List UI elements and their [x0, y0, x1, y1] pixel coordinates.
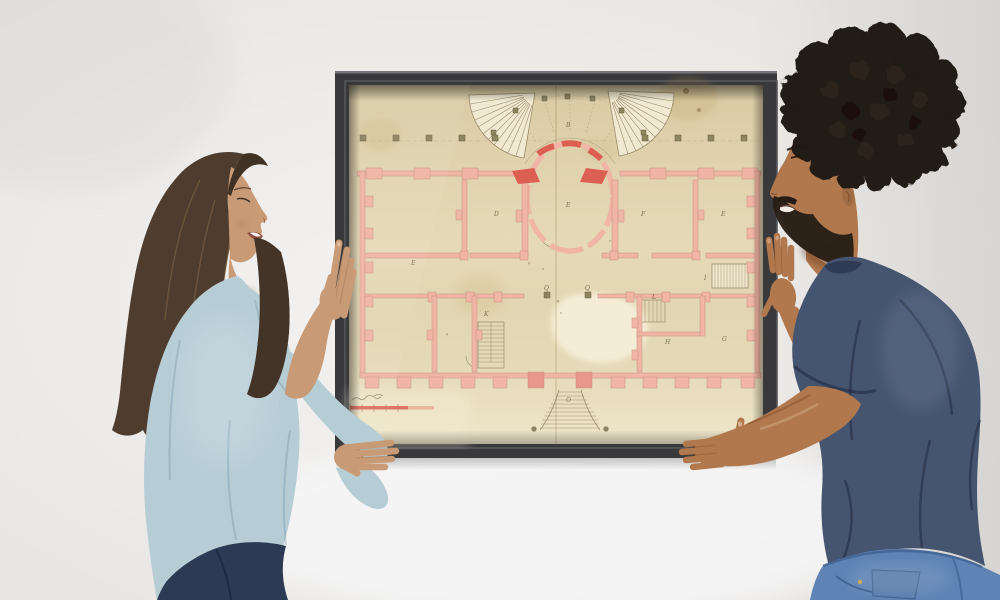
- wall-tab: [692, 251, 700, 260]
- interior-wall-west: [462, 180, 467, 256]
- pilaster: [707, 377, 721, 388]
- pilaster: [698, 168, 714, 179]
- pilaster: [493, 377, 507, 388]
- wall-tab: [476, 330, 482, 340]
- south-wall: [360, 373, 761, 378]
- wall-tab: [632, 318, 638, 328]
- wall-tab: [516, 210, 522, 222]
- entrance-pier-west: [528, 372, 544, 388]
- room-letter: L: [651, 294, 656, 301]
- curl-highlight: [850, 60, 870, 80]
- corridor-wall-n2: [470, 253, 522, 258]
- artwork-floor-plan: B D E F E E K L H G I O Q Q: [349, 76, 763, 444]
- oval-flank-wall-west: [522, 180, 528, 256]
- curl-highlight: [897, 132, 913, 148]
- pilaster: [461, 377, 475, 388]
- room-letter: E: [720, 211, 726, 218]
- pilaster: [650, 168, 666, 179]
- room-letter: D: [493, 211, 499, 218]
- room-letter: Q: [585, 285, 590, 292]
- corridor-wall-s7: [670, 294, 702, 298]
- curl-highlight: [821, 81, 839, 99]
- woman-cheek-blush: [236, 220, 248, 228]
- room-h-wall-s: [637, 332, 700, 336]
- pilaster: [643, 377, 657, 388]
- curl-highlight: [886, 66, 904, 84]
- corridor-wall-s5: [598, 294, 626, 298]
- woman-right-hand: [334, 443, 396, 473]
- oval-flank-wall-east: [612, 180, 618, 256]
- wall-tab: [626, 292, 634, 302]
- picture-frame: B D E F E E K L H G I O Q Q: [335, 71, 777, 470]
- wall-tab: [618, 210, 624, 222]
- room-letter: Q: [544, 285, 549, 292]
- room-letter: F: [640, 211, 646, 218]
- wall-tab: [460, 251, 468, 260]
- scale-bar-faded: [408, 406, 434, 410]
- stain-spot: [697, 108, 701, 112]
- room-letter: E: [565, 202, 571, 209]
- room-letter: G: [722, 336, 727, 343]
- curl-shadow: [908, 118, 922, 132]
- corridor-wall-n4: [652, 253, 694, 258]
- room-letter: O: [566, 397, 571, 404]
- corridor-wall-n3: [602, 253, 638, 258]
- room-g-wall-w: [700, 296, 705, 336]
- entrance-pier-east: [576, 372, 592, 388]
- wall-tab: [698, 210, 704, 220]
- man-curl: [864, 164, 892, 192]
- man-fingernail: [767, 239, 771, 244]
- wall-tab: [520, 251, 528, 260]
- pilaster: [611, 377, 625, 388]
- room-letter: H: [664, 339, 671, 346]
- room-letter: B: [565, 122, 571, 129]
- curl-highlight: [857, 142, 873, 158]
- curl-shadow: [853, 128, 867, 142]
- man-curl: [780, 100, 796, 116]
- photo-scene: B D E F E E K L H G I O Q Q: [0, 0, 1000, 600]
- pilaster: [675, 377, 689, 388]
- man-curl: [836, 162, 864, 190]
- room-letter: K: [483, 311, 489, 318]
- wall-tab: [427, 330, 433, 340]
- pilaster: [462, 168, 478, 179]
- man-curl: [891, 157, 921, 187]
- pilaster: [397, 377, 411, 388]
- curl-shadow: [883, 88, 897, 102]
- wall-tab: [456, 210, 462, 220]
- scene-svg: B D E F E E K L H G I O Q Q: [0, 0, 1000, 600]
- wall-tab: [610, 251, 618, 260]
- man-jeans-highlight: [850, 562, 950, 594]
- curl-highlight: [871, 103, 889, 121]
- curl-shadow: [842, 102, 858, 118]
- man-thumbnail: [738, 421, 742, 426]
- wall-tab: [632, 350, 638, 360]
- corridor-wall-s4: [502, 294, 524, 298]
- corridor-wall-s2: [436, 294, 466, 298]
- curl-highlight: [912, 92, 928, 108]
- wall-tab: [494, 292, 502, 302]
- woman-fingernail: [337, 241, 341, 246]
- curl-highlight: [830, 122, 846, 138]
- frame-top-highlight: [335, 71, 777, 74]
- man-shirt-highlight: [880, 290, 960, 410]
- interior-wall-east: [693, 180, 698, 256]
- corridor-wall-n5: [706, 253, 756, 258]
- man-fingernail: [775, 236, 779, 241]
- wall-tab: [662, 292, 670, 302]
- frame-inner-shadow-right: [752, 85, 763, 444]
- pilaster: [429, 377, 443, 388]
- north-wall-east: [620, 171, 761, 176]
